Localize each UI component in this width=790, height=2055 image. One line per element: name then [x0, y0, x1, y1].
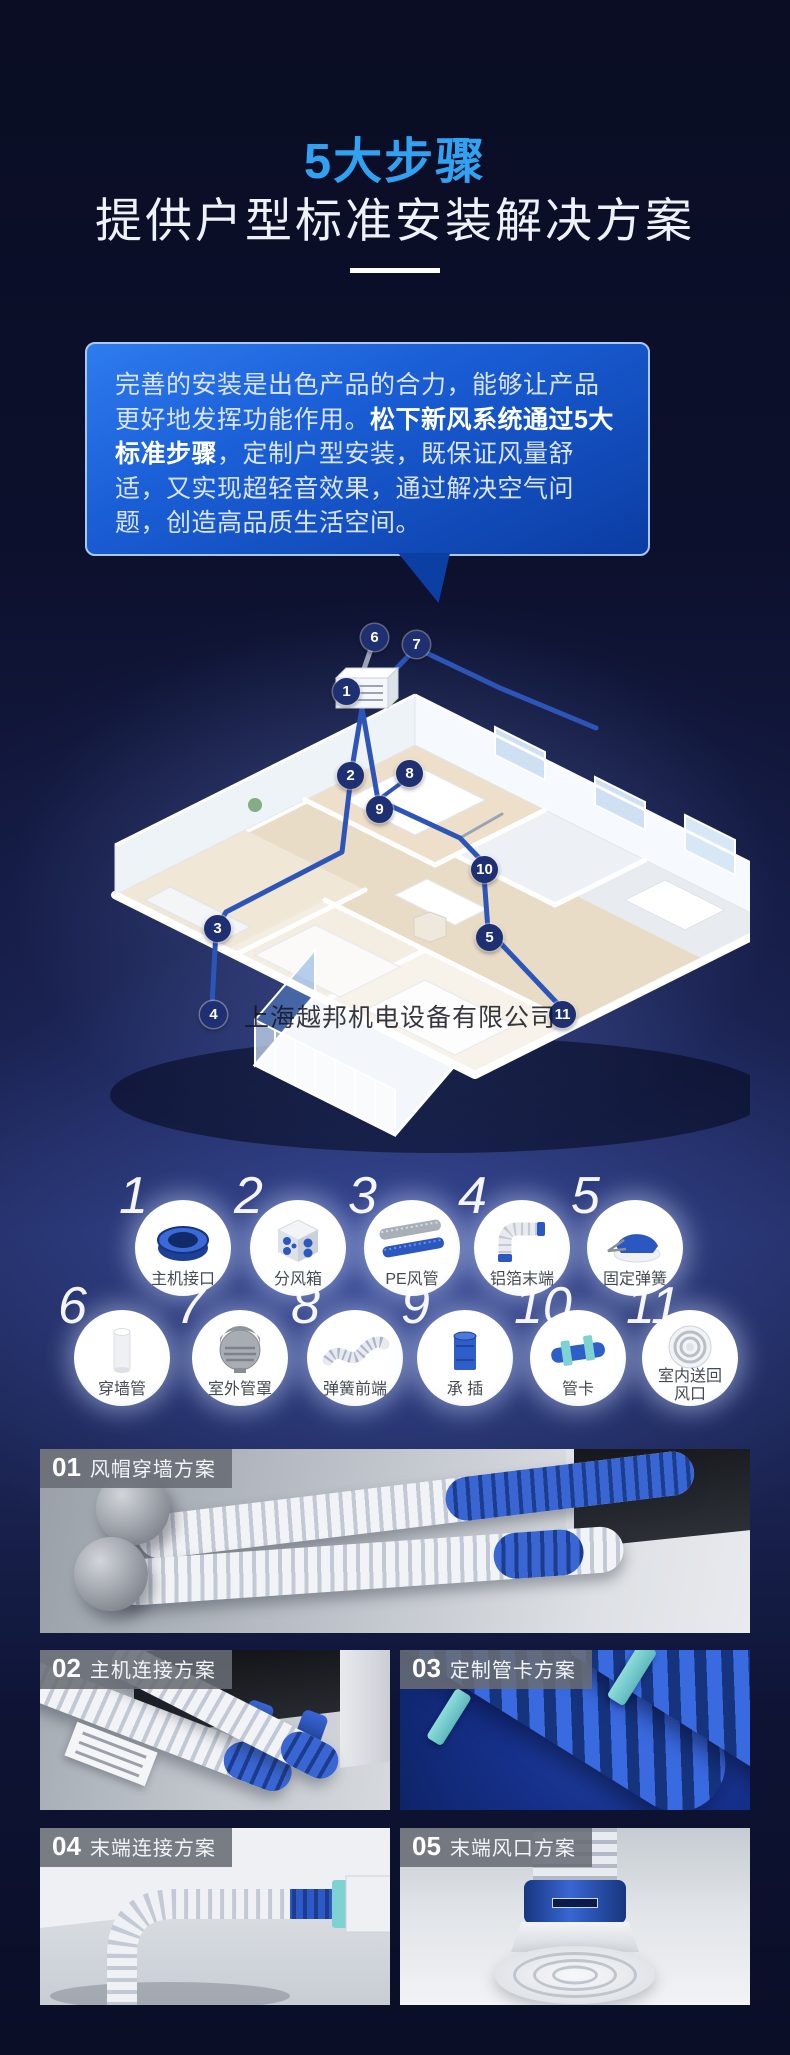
section-label: 05 末端风口方案 [400, 1828, 592, 1867]
product-item-11: 11 室内送回风口 [630, 1296, 750, 1446]
product-6-icon [86, 1320, 158, 1378]
section-02-number: 02 [52, 1654, 81, 1683]
product-4-number: 4 [458, 1170, 487, 1222]
product-5-icon [599, 1210, 671, 1268]
photo-main-unit-side [340, 1650, 390, 1768]
section-label: 04 末端连接方案 [40, 1828, 232, 1867]
product-10-label: 管卡 [530, 1381, 626, 1398]
product-8-circle: 弹簧前端 [307, 1310, 403, 1406]
product-8-number: 8 [291, 1280, 320, 1332]
floorplan-marker-9: 9 [366, 796, 393, 823]
product-9-circle: 承 插 [417, 1310, 513, 1406]
section-01-number: 01 [52, 1453, 81, 1482]
floorplan-marker-8: 8 [396, 760, 423, 787]
floorplan-marker-2: 2 [337, 762, 364, 789]
product-9-label: 承 插 [417, 1381, 513, 1398]
product-4-icon [486, 1210, 558, 1268]
product-11-number: 11 [626, 1280, 680, 1332]
product-6-label: 穿墙管 [74, 1381, 170, 1398]
product-10-number: 10 [514, 1280, 572, 1332]
product-7-number: 7 [176, 1280, 205, 1332]
watermark: 上海越邦机电设备有限公司 [210, 998, 590, 1034]
section-05-title: 末端风口方案 [450, 1832, 576, 1861]
product-item-9: 9 承 插 [405, 1296, 525, 1446]
section-04-title: 末端连接方案 [90, 1832, 216, 1861]
product-9-icon [429, 1320, 501, 1378]
product-item-7: 7 室外管罩 [180, 1296, 300, 1446]
section-03-number: 03 [412, 1654, 441, 1683]
intro-bubble: 完善的安装是出色产品的合力，能够让产品更好地发挥功能作用。松下新风系统通过5大标… [85, 342, 650, 556]
photo-duct-lower-blue [492, 1528, 585, 1580]
floorplan-marker-3: 3 [204, 915, 231, 942]
floorplan-drawing [40, 600, 750, 1160]
product-9-number: 9 [401, 1280, 430, 1332]
floorplan-marker-7: 7 [403, 631, 430, 658]
product-item-8: 8 弹簧前端 [295, 1296, 415, 1446]
bubble-tail [398, 553, 450, 603]
product-7-icon [204, 1320, 276, 1378]
product-1-icon [147, 1210, 219, 1268]
section-04-number: 04 [52, 1832, 81, 1861]
section-label: 02 主机连接方案 [40, 1650, 232, 1689]
floorplan-marker-1: 1 [333, 678, 360, 705]
product-2-number: 2 [234, 1170, 263, 1222]
product-7-label: 室外管罩 [192, 1381, 288, 1398]
floorplan: 1 2 3 4 5 6 7 8 9 10 11 上海越邦机电设备有限公司 [40, 600, 750, 1160]
floorplan-marker-5: 5 [476, 924, 503, 951]
section-label: 01 风帽穿墙方案 [40, 1449, 232, 1488]
section-02: 02 主机连接方案 [40, 1650, 390, 1810]
product-7-circle: 室外管罩 [192, 1310, 288, 1406]
section-05-number: 05 [412, 1832, 441, 1861]
section-label: 03 定制管卡方案 [400, 1650, 592, 1689]
product-2-icon [262, 1210, 334, 1268]
photo-blue-collar [524, 1880, 626, 1924]
section-02-title: 主机连接方案 [90, 1654, 216, 1683]
page-subtitle: 提供户型标准安装解决方案 [0, 182, 790, 251]
vent-ring [552, 1966, 598, 1985]
section-01-title: 风帽穿墙方案 [90, 1453, 216, 1482]
title-divider [350, 268, 440, 273]
section-01: 01 风帽穿墙方案 [40, 1449, 750, 1633]
product-8-label: 弹簧前端 [307, 1381, 403, 1398]
product-3-icon [376, 1210, 448, 1268]
ceiling-vent-icon [495, 1946, 655, 2004]
section-03: 03 定制管卡方案 [400, 1650, 750, 1810]
section-05: 05 末端风口方案 [400, 1828, 750, 2005]
product-11-label: 室内送回风口 [642, 1368, 738, 1403]
product-6-number: 6 [58, 1280, 87, 1332]
promo-page: 5大步骤 提供户型标准安装解决方案 完善的安装是出色产品的合力，能够让产品更好地… [0, 0, 790, 2055]
floorplan-marker-6: 6 [361, 624, 388, 651]
section-03-title: 定制管卡方案 [450, 1654, 576, 1683]
wall-cap-icon [74, 1537, 148, 1611]
product-item-10: 10 管卡 [518, 1296, 638, 1446]
product-5-number: 5 [571, 1170, 600, 1222]
section-04: 04 末端连接方案 [40, 1828, 390, 2005]
product-6-circle: 穿墙管 [74, 1310, 170, 1406]
product-item-6: 6 穿墙管 [62, 1296, 182, 1446]
product-3-number: 3 [348, 1170, 377, 1222]
photo-collar-logo [552, 1898, 598, 1908]
product-8-icon [319, 1320, 391, 1378]
photo-pipe-clamp [426, 1688, 472, 1747]
product-1-number: 1 [119, 1170, 148, 1222]
floorplan-marker-10: 10 [471, 856, 498, 883]
